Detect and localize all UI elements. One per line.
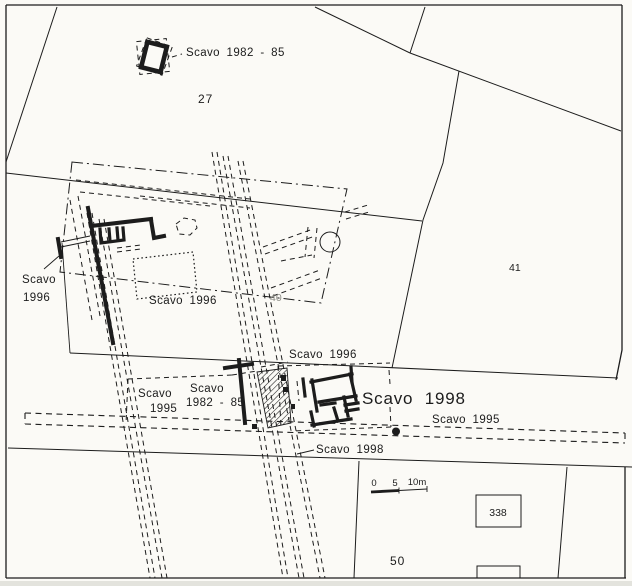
wall-segment (345, 403, 358, 405)
label-scavo-1982-85-south-line1: Scavo (190, 383, 224, 395)
label-scavo-1982-85-south-line2: 1982 - 85 (186, 397, 244, 409)
parcel-number-41: 41 (509, 262, 521, 274)
wall-remain (252, 424, 257, 429)
label-scavo-1998-main: Scavo 1998 (362, 389, 466, 408)
label-scavo-1995-left-line1: Scavo (138, 388, 172, 400)
parcel-number-27: 27 (198, 92, 213, 106)
wall-remain (291, 404, 295, 409)
paper-sheet (0, 0, 632, 586)
wall-segment (321, 403, 335, 405)
parcel-number-40: 40 (270, 292, 282, 304)
find-spot-dot (392, 428, 400, 436)
scale-tick-0: 0 (371, 478, 376, 489)
label-scavo-1996-left-line1: Scavo (22, 274, 56, 286)
label-scavo-1995-east: Scavo 1995 (432, 414, 500, 426)
wall-segment (346, 409, 358, 411)
label-scavo-1996-center: Scavo 1996 (149, 295, 217, 307)
wall-remain (281, 375, 286, 381)
label-scavo-1998-south: Scavo 1998 (316, 444, 384, 456)
label-scavo-1982-85-top: Scavo 1982 - 85 (186, 47, 285, 59)
site-plan-map: Scavo 1982 - 85 27 41 40 Scavo 1996 Scav… (0, 0, 632, 586)
label-scavo-1995-left-line2: 1995 (150, 403, 177, 415)
scale-tick-10m: 10m (408, 477, 427, 488)
scan-edge-bottom (0, 581, 632, 586)
wall-remain (283, 387, 288, 392)
wall-segment (303, 379, 305, 396)
paper-background (0, 0, 632, 586)
scale-bar-segment-thick (371, 491, 399, 493)
scale-tick-5: 5 (392, 478, 397, 489)
label-scavo-1996-south: Scavo 1996 (289, 349, 357, 361)
parcel-number-338: 338 (489, 507, 507, 519)
label-scavo-1996-left-line2: 1996 (23, 292, 50, 304)
parcel-number-50: 50 (390, 554, 405, 568)
